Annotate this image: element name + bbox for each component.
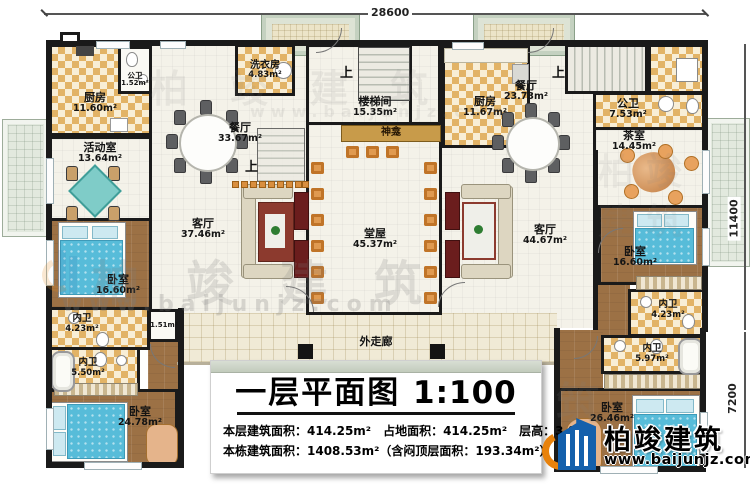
- dimension-top-value: 28600: [368, 6, 412, 19]
- tv-cabinet-left: [294, 192, 309, 230]
- up-annotation: 上: [552, 62, 565, 81]
- toilet: [686, 98, 699, 114]
- dining-table-right: [506, 117, 560, 171]
- sofa-right: [461, 264, 511, 279]
- label-dining-left: 餐厅33.67m²: [200, 122, 280, 145]
- tv-cabinet-right: [445, 240, 460, 278]
- label-laundry: 洗衣房4.83m²: [235, 60, 295, 81]
- plan-title-text: 一层平面图: [235, 375, 400, 411]
- label-closet: 1.51m²: [147, 322, 181, 330]
- label-bedroom-left1: 卧室16.60m²: [78, 274, 158, 297]
- window: [96, 41, 130, 49]
- wardrobe-right1: [636, 276, 702, 290]
- terrace-left: [2, 119, 49, 237]
- desk-left2: [146, 424, 178, 466]
- brand-url: www.baijunjz.com: [604, 452, 750, 468]
- label-bath-right1: 内卫4.23m²: [638, 300, 698, 320]
- window: [452, 42, 484, 50]
- window: [46, 240, 54, 286]
- dimension-right-lower-value: 7200: [726, 380, 739, 417]
- label-tea-room: 茶室14.45m²: [594, 130, 674, 153]
- label-bath-right2: 内卫5.97m²: [622, 344, 682, 364]
- wardrobe-right2: [604, 374, 704, 389]
- label-bath-left1: 内卫4.23m²: [52, 314, 112, 334]
- window: [702, 228, 710, 266]
- stove-left: [76, 46, 94, 56]
- floor-plan-canvas: 28600 11400 7200: [0, 0, 750, 489]
- label-stairwell: 楼梯间15.35m²: [330, 96, 420, 119]
- corridor-column: [298, 344, 313, 359]
- toilet: [126, 52, 138, 67]
- rug-right: [462, 202, 496, 260]
- label-dining-right: 餐厅23.73m²: [486, 80, 566, 103]
- title-block: 一层平面图 1:100 本层建筑面积：414.25m² 占地面积：414.25m…: [210, 360, 542, 474]
- kitchen-counter-right: [444, 48, 528, 63]
- label-bedroom-left2: 卧室24.78m²: [100, 406, 180, 429]
- label-corridor: 外走廊: [336, 336, 416, 348]
- tv-cabinet-right: [445, 192, 460, 230]
- window: [46, 408, 54, 450]
- corridor-column: [430, 344, 445, 359]
- window: [702, 150, 710, 194]
- title-underline: [237, 412, 515, 415]
- dimension-line-right-lower: [744, 332, 746, 468]
- label-living-left: 客厅37.46m²: [158, 218, 248, 241]
- toilet: [96, 332, 109, 347]
- label-bedroom-right1: 卧室16.60m²: [595, 246, 675, 269]
- up-annotation: 上: [245, 156, 258, 175]
- shrine-label: 神龛: [381, 127, 401, 138]
- stairs-right: [568, 47, 626, 91]
- tv-cabinet-left: [294, 240, 309, 278]
- rug-left: [258, 202, 294, 262]
- label-kitchen-left: 厨房11.60m²: [55, 92, 135, 115]
- title-block-step: [211, 361, 541, 373]
- dimension-line-right-upper: [744, 44, 746, 330]
- sofa-left: [243, 264, 293, 279]
- label-living-right: 客厅44.67m²: [500, 224, 590, 247]
- wall-living-right: [593, 150, 598, 330]
- label-public-bath-small: 公卫1.52m²: [118, 72, 152, 88]
- plan-title: 一层平面图 1:100: [211, 376, 541, 410]
- brand-logo: [542, 416, 602, 476]
- chimney: [60, 32, 80, 44]
- dimension-right-upper-value: 11400: [728, 196, 741, 240]
- area-info-line1: 本层建筑面积：414.25m² 占地面积：414.25m² 层高：3.8m: [223, 422, 541, 439]
- shrine-banner: 神龛: [341, 125, 441, 142]
- kitchen-sink-left: [110, 118, 128, 132]
- washer: [676, 58, 698, 82]
- window: [84, 462, 142, 470]
- wall-passage: [438, 44, 442, 124]
- area-info-line2: 本栋建筑面积：1408.53m²（含闷顶层面积：193.34m²）: [223, 442, 541, 459]
- sofa-right: [461, 184, 511, 199]
- label-public-bath-right: 公卫7.53m²: [588, 98, 668, 121]
- plan-scale: 1:100: [413, 375, 517, 411]
- label-activity: 活动室13.64m²: [52, 142, 148, 165]
- window: [160, 41, 186, 49]
- stairs-left: [358, 47, 410, 101]
- wall-top: [46, 40, 708, 46]
- wall-wing-left-right: [178, 308, 184, 468]
- label-bath-left2: 内卫5.50m²: [58, 358, 118, 378]
- label-hall: 堂屋45.37m²: [335, 228, 415, 251]
- up-annotation: 上: [340, 62, 353, 81]
